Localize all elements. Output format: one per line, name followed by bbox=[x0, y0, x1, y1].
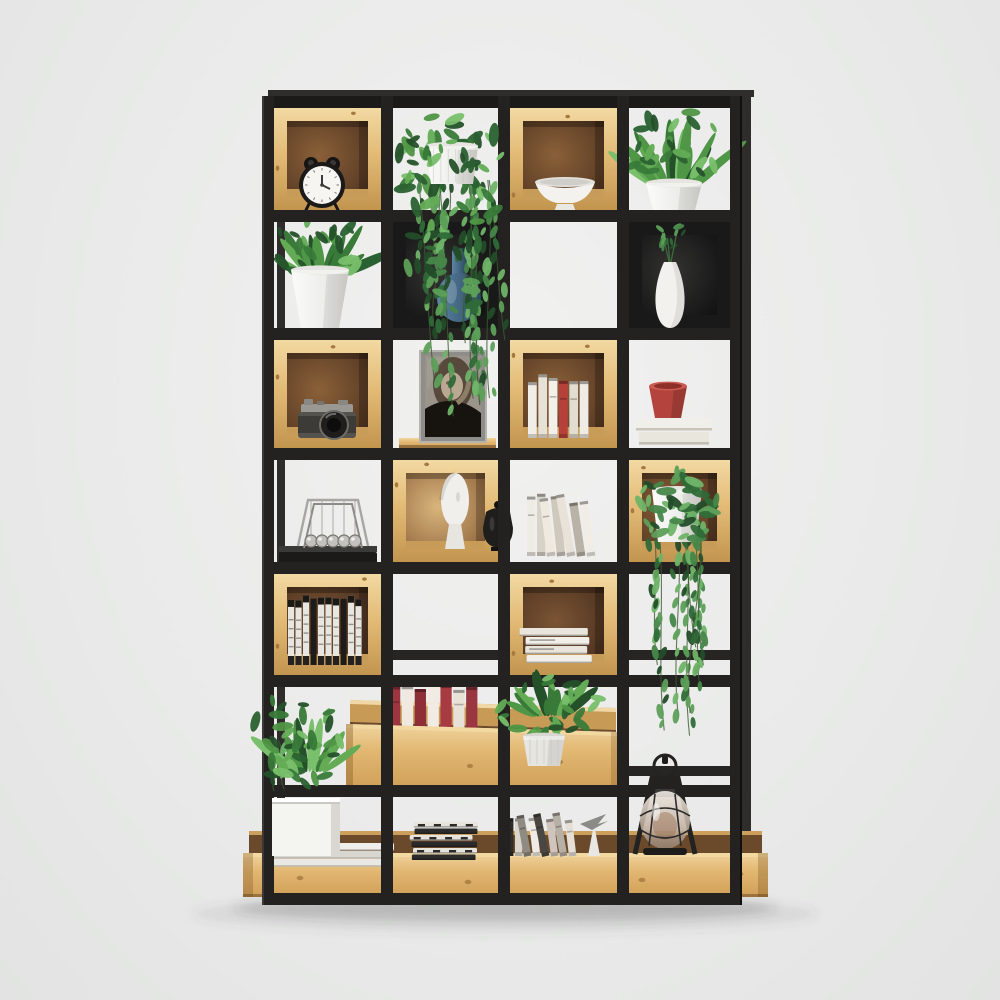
frame-vertical-post bbox=[381, 96, 393, 905]
product-photo-stage bbox=[0, 0, 1000, 1000]
newtons-cradle bbox=[279, 500, 377, 564]
rear-brace bbox=[629, 766, 741, 776]
frame-vertical-post bbox=[617, 96, 629, 905]
books-leaning-row4 bbox=[527, 494, 595, 557]
trailing-vine-plant bbox=[633, 465, 722, 735]
rear-post bbox=[742, 91, 751, 833]
frame-vertical-post bbox=[498, 96, 510, 905]
red-cup-on-books bbox=[636, 382, 712, 445]
rear-brace bbox=[393, 650, 498, 660]
vintage-camera bbox=[298, 399, 356, 439]
bookshelf-scene bbox=[0, 0, 1000, 1000]
potted-plant-row2-left bbox=[272, 211, 395, 328]
